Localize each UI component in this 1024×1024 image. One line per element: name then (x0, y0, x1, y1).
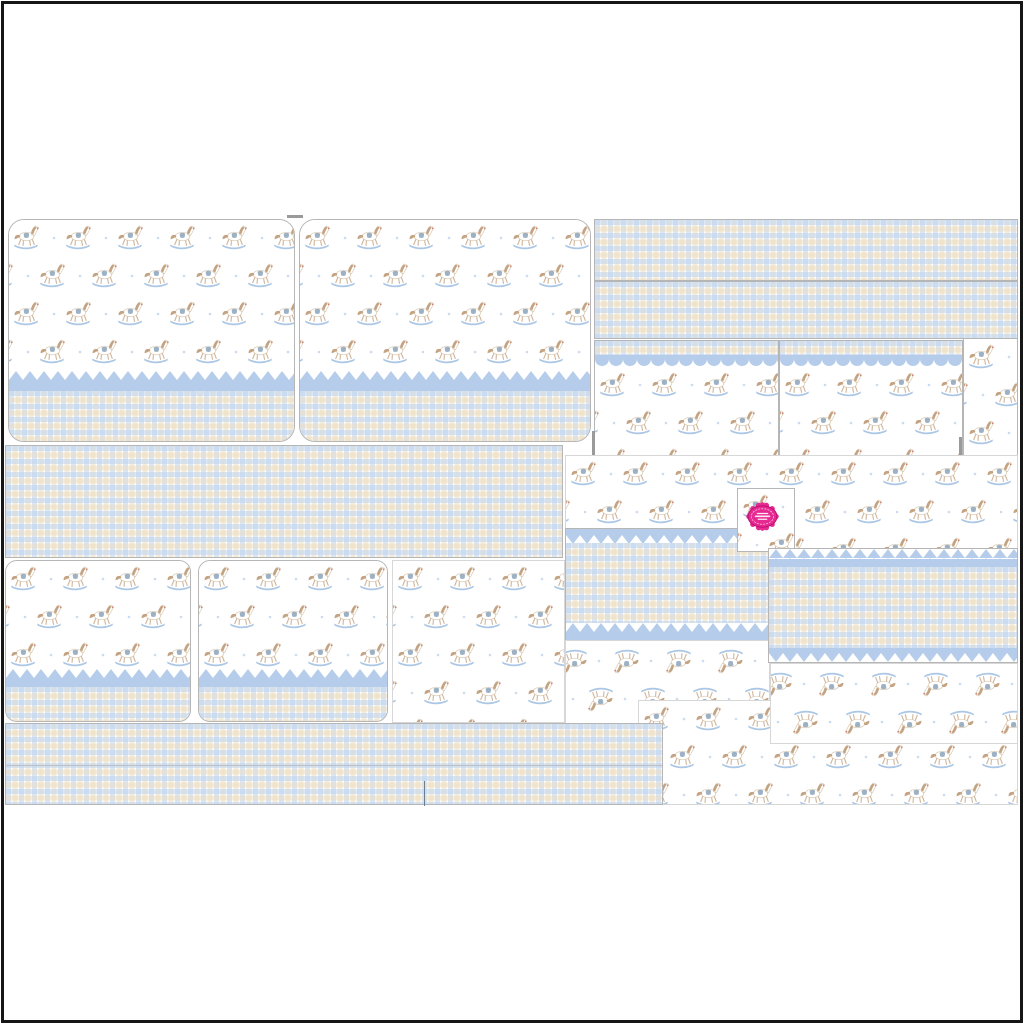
gingham-strip-right-upper (594, 219, 1018, 281)
bunting-bar (769, 559, 1017, 567)
micro-text-mark-right (959, 437, 962, 455)
gingham-footer (9, 391, 294, 442)
template-sheet-canvas (0, 0, 1024, 1024)
horse-pattern-panel (199, 561, 387, 669)
wrapper-card-top-center (299, 219, 591, 442)
gingham-footer (199, 687, 387, 722)
horse-field-bottom-left (392, 560, 565, 723)
wrapper-card-bottom-left-2 (198, 560, 388, 722)
gingham-body (769, 567, 1017, 648)
bunting-bar (6, 678, 190, 687)
bunting-bar (300, 380, 590, 391)
gingham-body (566, 543, 769, 623)
wrapper-card-top-left (8, 219, 295, 442)
bunting-teeth-up (769, 549, 1017, 559)
scallop-edge (780, 359, 962, 367)
gingham-strip-right-lower (594, 281, 1018, 339)
candy-wrapper-right (768, 548, 1018, 663)
inverted-horse-field-right (770, 663, 1018, 744)
bunting-teeth-down (769, 653, 1017, 662)
horse-pattern-panel (780, 367, 962, 458)
bunting-bar (199, 678, 387, 687)
horse-pattern-panel (300, 220, 590, 371)
horse-pattern-panel (9, 220, 294, 371)
micro-text-mark-top (287, 215, 303, 218)
wrapper-card-bottom-left-1 (5, 560, 191, 722)
horse-pattern-panel (6, 561, 190, 669)
gingham-band-middle-left (5, 445, 563, 558)
scallop-edge (595, 359, 778, 367)
bunting-teeth-up (6, 669, 190, 678)
cut-line (424, 781, 425, 806)
gingham-footer (6, 687, 190, 722)
bunting-teeth-up (9, 371, 294, 380)
bunting-teeth-up (300, 371, 590, 380)
header-card-right-1 (594, 340, 779, 457)
header-card-right-2 (779, 340, 963, 457)
micro-cut-mark-mid (592, 431, 595, 455)
gingham-strip-bottom (5, 723, 663, 805)
gingham-footer (300, 391, 590, 442)
bunting-bar (9, 380, 294, 391)
fold-line (6, 765, 662, 766)
bunting-teeth-up (566, 623, 769, 632)
gingham-header (595, 341, 778, 355)
bunting-teeth-up (199, 669, 387, 678)
brand-seal-badge (746, 502, 779, 531)
gingham-header (780, 341, 962, 355)
horse-pattern-panel (595, 367, 778, 458)
